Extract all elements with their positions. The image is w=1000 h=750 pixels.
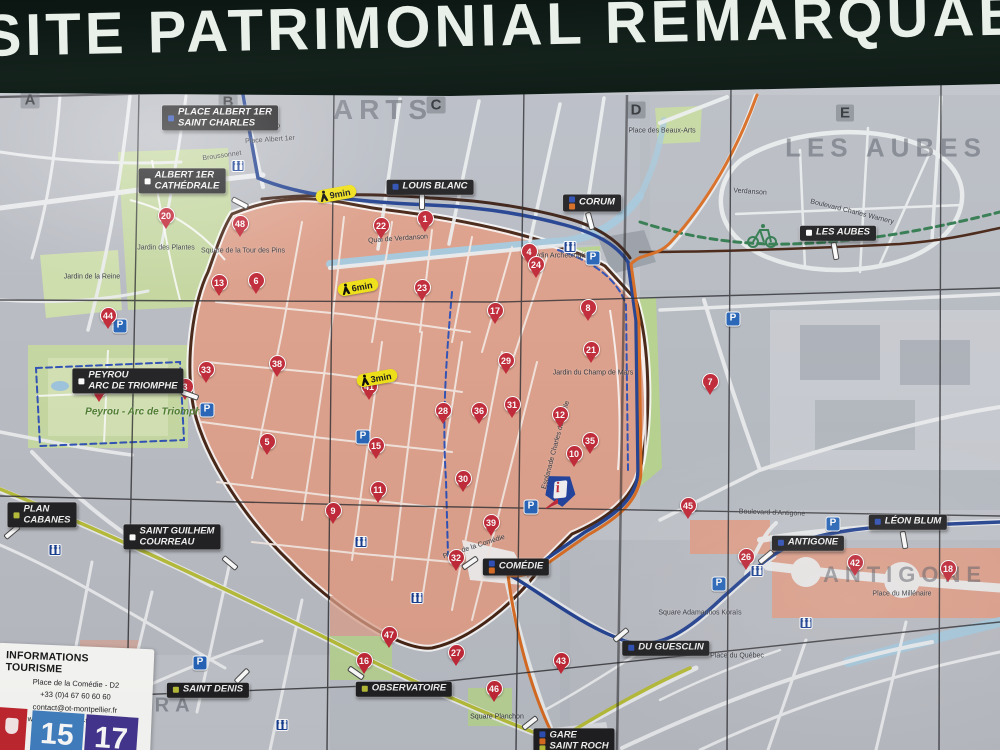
map-marker-15: 15 bbox=[368, 437, 385, 461]
marker-number: 16 bbox=[356, 652, 373, 669]
marker-number: 1 bbox=[417, 210, 434, 227]
parking-icon: P bbox=[200, 403, 215, 418]
marker-number: 12 bbox=[552, 406, 569, 423]
marker-number: 22 bbox=[373, 217, 390, 234]
transit-line-icon bbox=[778, 540, 784, 546]
parking-icon: P bbox=[826, 517, 841, 532]
marker-number: 26 bbox=[738, 548, 755, 565]
label-pointer-louis-blanc bbox=[419, 192, 425, 210]
map-marker-27: 27 bbox=[448, 644, 465, 668]
map-label-text: LOUIS BLANC bbox=[403, 182, 468, 193]
map-label-du-guesclin: DU GUESCLIN bbox=[622, 641, 709, 656]
marker-number: 48 bbox=[232, 215, 249, 232]
map-marker-48: 48 bbox=[232, 215, 249, 239]
map-marker-46: 46 bbox=[486, 680, 503, 704]
map-marker-24: 24 bbox=[528, 256, 545, 280]
map-marker-45: 45 bbox=[680, 497, 697, 521]
marker-number: 11 bbox=[370, 481, 387, 498]
map-label-les-aubes: LES AUBES bbox=[800, 226, 876, 241]
map-marker-10: 10 bbox=[566, 445, 583, 469]
map-label-gare-saint-roch: GARESAINT ROCH bbox=[533, 728, 614, 750]
map-overlay: 1345678910111213151617182021222324262728… bbox=[0, 0, 1000, 750]
marker-number: 9 bbox=[325, 502, 342, 519]
map-marker-26: 26 bbox=[738, 548, 755, 572]
map-marker-6: 6 bbox=[248, 272, 265, 296]
marker-number: 39 bbox=[483, 514, 500, 531]
map-marker-33: 33 bbox=[198, 361, 215, 385]
label-pointer-saint-guilhem-courreau bbox=[221, 555, 239, 571]
red-info-badge bbox=[0, 707, 28, 750]
map-label-text: PEYROUARC DE TRIOMPHE bbox=[88, 370, 177, 391]
label-pointer-antigone bbox=[757, 549, 775, 565]
transit-line-icon bbox=[145, 178, 151, 184]
map-marker-17: 17 bbox=[487, 302, 504, 326]
place-name: Place du Millénaire bbox=[872, 591, 931, 598]
place-name: Place des Beaux-Arts bbox=[628, 128, 695, 135]
map-label-corum: CORUM bbox=[563, 195, 621, 212]
map-marker-12: 12 bbox=[552, 406, 569, 430]
marker-number: 13 bbox=[211, 274, 228, 291]
walking-person-icon bbox=[341, 283, 351, 295]
marker-number: 35 bbox=[582, 432, 599, 449]
grid-letter-e: E bbox=[836, 105, 854, 122]
map-marker-5: 5 bbox=[259, 433, 276, 457]
map-label-text: ALBERT 1ERCATHÉDRALE bbox=[155, 170, 220, 191]
transit-line-icon bbox=[489, 561, 495, 574]
place-name: Jardin des Plantes bbox=[137, 245, 195, 252]
marker-number: 29 bbox=[498, 352, 515, 369]
map-label-text: COMÉDIE bbox=[499, 562, 543, 573]
map-label-plan-cabanes: PLANCABANES bbox=[8, 502, 77, 527]
map-label-albert-1er-cath-drale: ALBERT 1ERCATHÉDRALE bbox=[139, 168, 226, 193]
transit-line-icon bbox=[569, 197, 575, 210]
transit-line-icon bbox=[806, 230, 812, 236]
place-name: Place du Québec bbox=[710, 653, 764, 660]
place-name: Square Adamantios Koraïs bbox=[658, 610, 741, 617]
place-name: Boulevard Charles Warnery bbox=[810, 198, 895, 226]
map-marker-47: 47 bbox=[381, 626, 398, 650]
map-marker-22: 22 bbox=[373, 217, 390, 241]
place-name: Jardin du Champ de Mars bbox=[553, 370, 634, 377]
transit-line-icon bbox=[168, 115, 174, 121]
transit-line-icon bbox=[362, 686, 368, 692]
photographed-tourist-map-panel: 1345678910111213151617182021222324262728… bbox=[0, 0, 1000, 750]
marker-number: 18 bbox=[940, 560, 957, 577]
map-label-text: LÉON BLUM bbox=[885, 517, 941, 528]
line-badge-17: 17 bbox=[83, 714, 138, 750]
map-marker-9: 9 bbox=[325, 502, 342, 526]
marker-number: 10 bbox=[566, 445, 583, 462]
transit-line-icon bbox=[875, 519, 881, 525]
map-label-observatoire: OBSERVATOIRE bbox=[356, 682, 452, 697]
map-marker-35: 35 bbox=[582, 432, 599, 456]
walking-time-badge: 9min bbox=[315, 184, 358, 204]
marker-number: 43 bbox=[553, 652, 570, 669]
district-name-les-aubes: LES AUBES bbox=[785, 133, 987, 164]
map-label-text: LES AUBES bbox=[816, 228, 870, 239]
marker-number: 28 bbox=[435, 402, 452, 419]
marker-number: 8 bbox=[580, 299, 597, 316]
marker-number: 15 bbox=[368, 437, 385, 454]
map-marker-23: 23 bbox=[414, 279, 431, 303]
map-marker-21: 21 bbox=[583, 341, 600, 365]
place-name: Verdanson bbox=[733, 187, 767, 196]
transit-line-icon bbox=[628, 645, 634, 651]
transit-stop-icon bbox=[355, 536, 368, 548]
label-pointer-les-aubes bbox=[830, 242, 839, 261]
walking-person-icon bbox=[319, 190, 329, 202]
transit-stop-icon bbox=[276, 719, 289, 731]
map-label-text: PLANCABANES bbox=[24, 504, 71, 525]
map-marker-29: 29 bbox=[498, 352, 515, 376]
map-marker-39: 39 bbox=[483, 514, 500, 538]
marker-number: 7 bbox=[702, 373, 719, 390]
map-label-peyrou-arc-de-triomphe: PEYROUARC DE TRIOMPHE bbox=[72, 368, 183, 393]
grid-letter-a: A bbox=[21, 92, 40, 109]
marker-number: 23 bbox=[414, 279, 431, 296]
map-marker-8: 8 bbox=[580, 299, 597, 323]
map-marker-13: 13 bbox=[211, 274, 228, 298]
transit-line-icon bbox=[14, 512, 20, 518]
map-marker-20: 20 bbox=[158, 207, 175, 231]
map-label-com-die: COMÉDIE bbox=[483, 559, 549, 576]
transit-stop-icon bbox=[564, 241, 577, 253]
walking-time-badge: 6min bbox=[337, 277, 380, 297]
map-marker-30: 30 bbox=[455, 470, 472, 494]
map-label-louis-blanc: LOUIS BLANC bbox=[387, 180, 474, 195]
transit-stop-icon bbox=[232, 160, 245, 172]
map-label-text: SAINT DENIS bbox=[183, 685, 243, 696]
map-label-text: ANTIGONE bbox=[788, 538, 838, 549]
map-label-antigone: ANTIGONE bbox=[772, 536, 844, 551]
marker-number: 24 bbox=[528, 256, 545, 273]
parking-icon: P bbox=[524, 500, 539, 515]
map-label-text: SAINT GUILHEMCOURREAU bbox=[140, 526, 215, 547]
map-marker-28: 28 bbox=[435, 402, 452, 426]
map-label-saint-guilhem-courreau: SAINT GUILHEMCOURREAU bbox=[124, 524, 221, 549]
map-label-text: OBSERVATOIRE bbox=[372, 684, 446, 695]
marker-number: 21 bbox=[583, 341, 600, 358]
info-title: INFORMATIONS TOURISME bbox=[5, 649, 148, 679]
map-marker-32: 32 bbox=[448, 549, 465, 573]
map-label-text: GARESAINT ROCH bbox=[549, 730, 608, 750]
marker-number: 5 bbox=[259, 433, 276, 450]
logo-swoosh bbox=[544, 498, 559, 508]
transit-line-icon bbox=[78, 378, 84, 384]
marker-number: 20 bbox=[158, 207, 175, 224]
marker-number: 46 bbox=[486, 680, 503, 697]
map-label-saint-denis: SAINT DENIS bbox=[167, 683, 249, 698]
map-marker-43: 43 bbox=[553, 652, 570, 676]
place-name: Boulevard d'Antigone bbox=[739, 508, 806, 517]
transit-line-icon bbox=[130, 534, 136, 540]
label-pointer-l-on-blum bbox=[899, 531, 908, 550]
grid-letter-c: C bbox=[427, 97, 446, 114]
map-marker-1: 1 bbox=[417, 210, 434, 234]
transit-stop-icon bbox=[800, 617, 813, 629]
marker-number: 42 bbox=[847, 554, 864, 571]
place-name: Square de la Tour des Pins bbox=[201, 248, 285, 255]
label-pointer-corum bbox=[585, 212, 595, 231]
sign-title: SITE PATRIMONIAL REMARQUABLE bbox=[0, 0, 1000, 70]
marker-number: 33 bbox=[198, 361, 215, 378]
transit-stop-icon bbox=[411, 592, 424, 604]
map-label-text: CORUM bbox=[579, 198, 615, 209]
marker-number: 17 bbox=[487, 302, 504, 319]
parking-icon: P bbox=[586, 251, 601, 266]
marker-number: 31 bbox=[504, 396, 521, 413]
transit-line-icon bbox=[173, 687, 179, 693]
map-marker-44: 44 bbox=[100, 307, 117, 331]
place-name: Peyrou - Arc de Triomphe bbox=[85, 407, 207, 418]
map-label-place-albert-1er-saint-charles: PLACE ALBERT 1ERSAINT CHARLES bbox=[162, 105, 278, 130]
tourist-office-logo: i bbox=[543, 474, 576, 509]
map-marker-38: 38 bbox=[269, 355, 286, 379]
marker-number: 27 bbox=[448, 644, 465, 661]
map-label-l-on-blum: LÉON BLUM bbox=[869, 515, 947, 530]
parking-icon: P bbox=[193, 656, 208, 671]
marker-number: 47 bbox=[381, 626, 398, 643]
map-marker-36: 36 bbox=[471, 402, 488, 426]
marker-number: 6 bbox=[248, 272, 265, 289]
marker-number: 44 bbox=[100, 307, 117, 324]
label-pointer-albert-1er-cath-drale bbox=[231, 196, 250, 210]
transit-stop-icon bbox=[49, 544, 62, 556]
marker-number: 30 bbox=[455, 470, 472, 487]
district-name-arts: ARTS bbox=[333, 94, 433, 126]
parking-icon: P bbox=[712, 577, 727, 592]
place-name: Square Planchon bbox=[470, 714, 524, 721]
map-marker-7: 7 bbox=[702, 373, 719, 397]
map-marker-11: 11 bbox=[370, 481, 387, 505]
marker-number: 36 bbox=[471, 402, 488, 419]
transit-line-icon bbox=[393, 184, 399, 190]
line-badge-15: 15 bbox=[29, 710, 84, 750]
map-label-text: DU GUESCLIN bbox=[638, 643, 703, 654]
marker-number: 45 bbox=[680, 497, 697, 514]
place-name: Place Albert 1er bbox=[245, 135, 295, 145]
marker-number: 38 bbox=[269, 355, 286, 372]
grid-letter-d: D bbox=[627, 102, 646, 119]
walking-person-icon bbox=[360, 374, 370, 386]
map-marker-31: 31 bbox=[504, 396, 521, 420]
place-name: Jardin de la Reine bbox=[64, 274, 120, 281]
map-marker-18: 18 bbox=[940, 560, 957, 584]
parking-icon: P bbox=[726, 312, 741, 327]
map-label-text: PLACE ALBERT 1ERSAINT CHARLES bbox=[178, 107, 272, 128]
map-marker-42: 42 bbox=[847, 554, 864, 578]
transit-line-icon bbox=[539, 731, 545, 750]
